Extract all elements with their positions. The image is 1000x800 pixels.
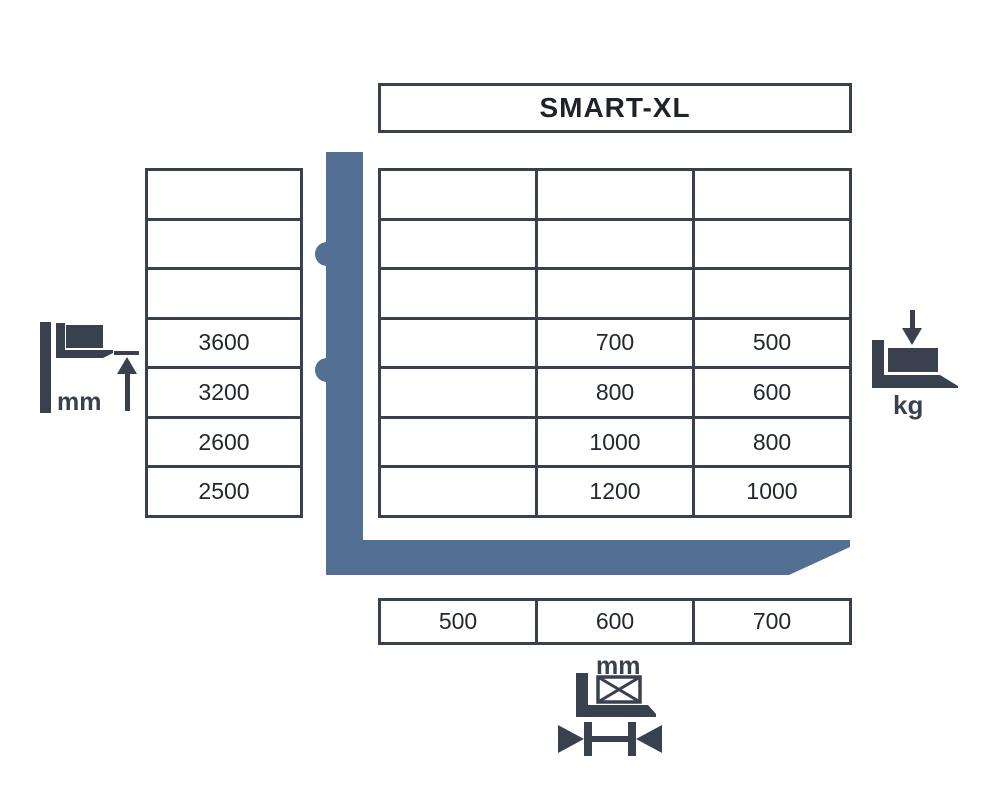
capacity-cell: 500 [695,320,849,367]
model-title-box: SMART-XL [378,83,852,133]
capacity-cell: 800 [538,369,692,416]
capacity-cell [381,320,535,367]
load-size-cell: 500 [381,601,535,642]
capacity-cell: 1000 [695,468,849,515]
width-arrow-right-stop-icon [628,722,636,756]
lift-height-cell: 2600 [148,419,300,466]
capacity-cell [381,369,535,416]
capacity-icon: kg [865,302,965,420]
capacity-cell: 1000 [538,419,692,466]
capacity-cell: 1200 [538,468,692,515]
capacity-cell [538,270,692,317]
lift-height-cell: 3200 [148,369,300,416]
capacity-cell [695,270,849,317]
load-size-table: 500 600 700 [378,598,852,645]
up-arrow-icon [117,357,137,374]
capacity-unit-label: kg [893,390,923,420]
up-arrow-shaft-icon [125,372,130,411]
lift-height-icon: mm [30,313,142,415]
load-width-icon: mm [556,645,668,757]
lift-height-cell: 3600 [148,320,300,367]
capacity-cell [381,270,535,317]
load-size-cell: 700 [695,601,849,642]
height-limit-line-icon [114,351,139,355]
down-arrow-shaft-icon [910,310,915,330]
width-arrow-right-icon [636,725,662,753]
lift-height-cell [148,171,300,218]
lift-height-cell [148,270,300,317]
capacity-cell [381,221,535,268]
load-box-icon [888,348,938,372]
capacity-cell: 700 [538,320,692,367]
lift-height-cell [148,221,300,268]
capacity-cell [538,221,692,268]
capacity-cell [381,419,535,466]
model-title: SMART-XL [539,92,690,124]
width-arrow-left-icon [558,725,584,753]
capacity-cell [538,171,692,218]
mast-bump-upper [315,242,339,266]
width-arrow-left-stop-icon [584,722,592,756]
capacity-table: 700 500 800 600 1000 800 1200 1000 [378,168,852,518]
capacity-cell [695,221,849,268]
mast-bar-icon [40,322,51,413]
capacity-cell [381,171,535,218]
capacity-cell [381,468,535,515]
capacity-cell: 800 [695,419,849,466]
width-arrow-line-icon [592,736,628,742]
capacity-cell: 600 [695,369,849,416]
lift-height-cell: 2500 [148,468,300,515]
mast-bump-lower [315,358,339,382]
load-size-cell: 600 [538,601,692,642]
crossed-box-x-icon [598,677,640,702]
down-arrow-icon [902,328,922,345]
lift-height-unit-label: mm [57,388,101,415]
load-box-icon [66,325,103,348]
lift-height-table: 3600 3200 2600 2500 [145,168,303,518]
capacity-diagram: SMART-XL 3600 3200 2600 2500 700 500 800… [0,0,1000,800]
capacity-cell [695,171,849,218]
